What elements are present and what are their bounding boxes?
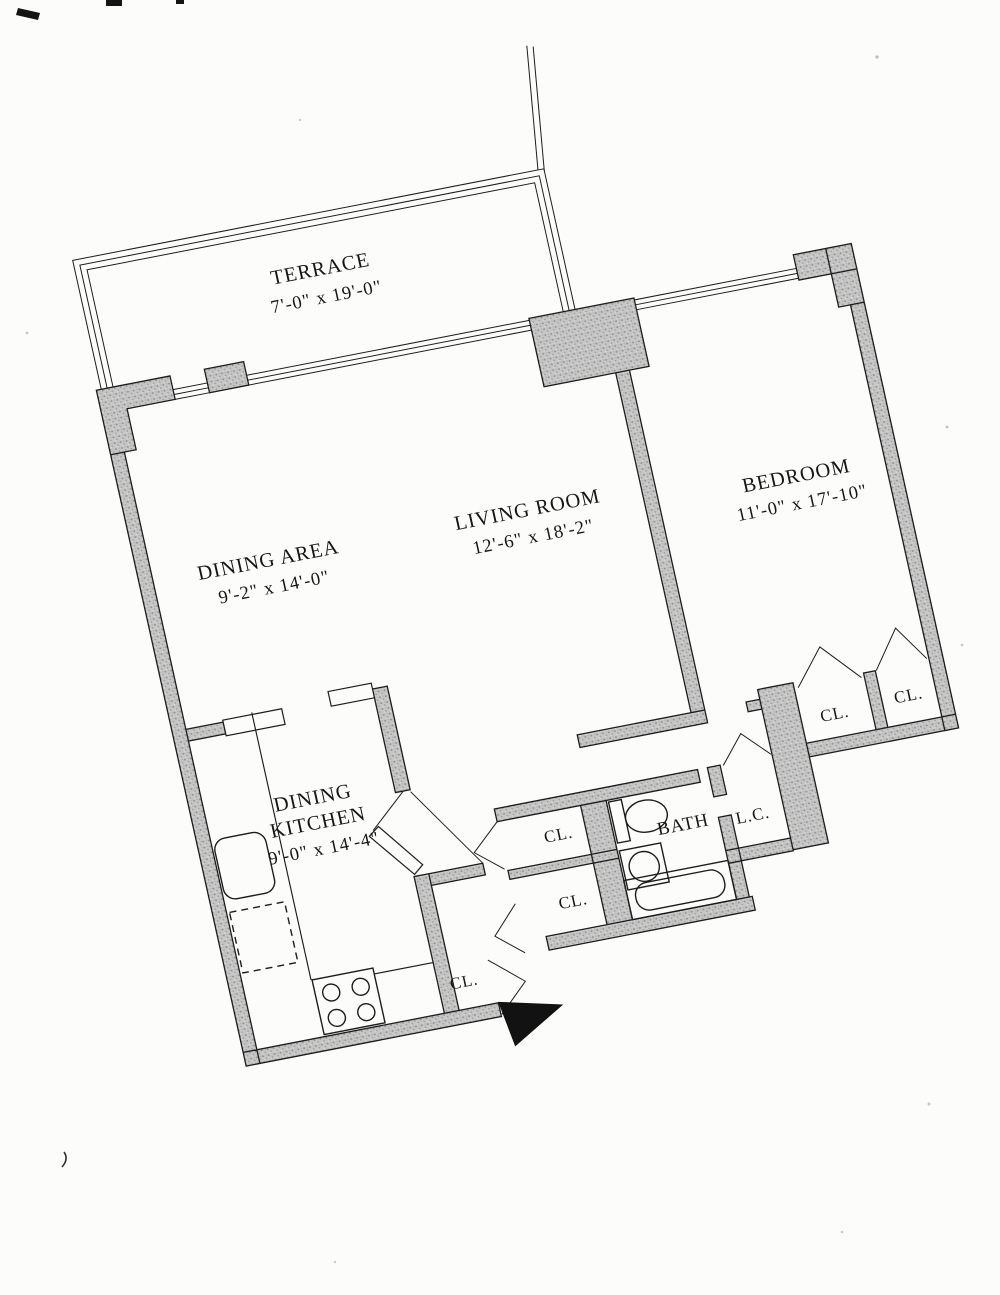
scan-speck: [841, 1231, 844, 1234]
kitchen-wall-stub-leaf: [328, 683, 374, 706]
scan-speck: [299, 119, 301, 121]
closet-door-chevron-bedroom-right: [868, 624, 927, 671]
floorplan-drawing: TERRACE 7'-0" x 19'-0" DINING AREA 9'-2"…: [0, 0, 1000, 1295]
kitchen-wall-diagonal: [411, 781, 483, 874]
scan-smudge: [176, 0, 184, 4]
closet-door-chevron-foyer-lower: [489, 904, 526, 958]
scan-speck: [928, 1103, 931, 1106]
railing-line: [73, 169, 576, 403]
closet-label-bedroom-left: CL.: [818, 702, 851, 726]
kitchen-fixtures: [187, 689, 444, 1047]
closet-label-bedroom-right: CL.: [892, 683, 925, 707]
scan-speck: [875, 55, 878, 58]
closet-label-foyer-lower: CL.: [557, 889, 590, 913]
window-glass: [173, 268, 798, 399]
scan-smudge: [106, 0, 122, 6]
closet-label-foyer-upper: CL.: [542, 823, 575, 847]
scan-speck: [961, 644, 964, 647]
floorplan-rotated: TERRACE 7'-0" x 19'-0" DINING AREA 9'-2"…: [41, 0, 1000, 1102]
wall-segments: [96, 244, 1000, 1067]
stove: [312, 968, 385, 1035]
scan-speck: [26, 332, 29, 335]
floorplan-plan: TERRACE 7'-0" x 19'-0" DINING AREA 9'-2"…: [41, 0, 1000, 1097]
terrace-divider-line: [517, 47, 560, 171]
scan-speck: [946, 426, 949, 429]
kitchen-door-swing: [366, 791, 410, 830]
window-lines: [173, 268, 798, 399]
closet-door-chevron-linen: [717, 729, 771, 766]
terrace-railing: [46, 45, 591, 403]
scan-speck: [334, 1261, 336, 1263]
scan-smudge: [16, 8, 40, 20]
scan-squiggle: [62, 1152, 66, 1167]
closet-door-chevron-bedroom-left: [790, 640, 861, 689]
terrace-divider-line: [511, 46, 554, 170]
scanned-floorplan-page: TERRACE 7'-0" x 19'-0" DINING AREA 9'-2"…: [0, 0, 1000, 1295]
linen-closet-label: L.C.: [734, 803, 772, 828]
walls: [96, 244, 1000, 1067]
bath-label: BATH: [655, 811, 711, 841]
closet-label-kitchen: CL.: [448, 970, 480, 994]
refrigerator-dashed: [230, 902, 298, 973]
entry-arrow: [498, 990, 570, 1048]
